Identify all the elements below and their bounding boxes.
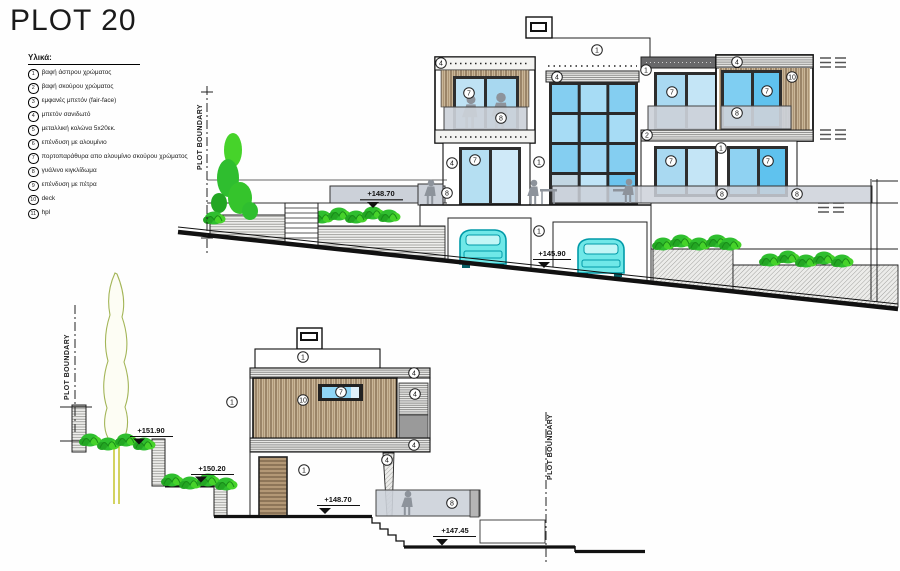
plot-boundary-right-bottom: PLOT BOUNDARY bbox=[546, 412, 554, 563]
svg-text:8: 8 bbox=[445, 190, 449, 197]
svg-text:8: 8 bbox=[499, 115, 503, 122]
svg-text:4: 4 bbox=[412, 370, 416, 377]
svg-text:+145.90: +145.90 bbox=[538, 249, 565, 258]
svg-text:7: 7 bbox=[766, 158, 770, 165]
svg-text:7: 7 bbox=[467, 90, 471, 97]
slab-band bbox=[641, 130, 813, 141]
svg-text:4: 4 bbox=[735, 59, 739, 66]
drawing-sheet: PLOT 20 Υλικά: 1βαφή άσπρου χρώματος 2βα… bbox=[0, 0, 900, 571]
svg-text:8: 8 bbox=[720, 191, 724, 198]
svg-text:1: 1 bbox=[644, 67, 648, 74]
car bbox=[578, 239, 624, 277]
bottom-elevation: PLOT BOUNDARY PLOT BOUNDARY +151.90 +150… bbox=[60, 273, 645, 563]
svg-text:+147.45: +147.45 bbox=[441, 526, 468, 535]
callout-4: 4 bbox=[409, 368, 420, 379]
balcony-railing bbox=[721, 106, 791, 129]
svg-text:7: 7 bbox=[473, 157, 477, 164]
svg-text:4: 4 bbox=[555, 74, 559, 81]
callout-8: 8 bbox=[732, 108, 743, 119]
svg-text:4: 4 bbox=[413, 391, 417, 398]
svg-text:4: 4 bbox=[450, 160, 454, 167]
glass-railing bbox=[376, 490, 480, 516]
callout-4: 4 bbox=[409, 440, 420, 451]
svg-text:+151.90: +151.90 bbox=[137, 426, 164, 435]
grey-panel bbox=[399, 415, 428, 438]
chimney-vent bbox=[301, 333, 317, 340]
svg-text:+148.70: +148.70 bbox=[367, 189, 394, 198]
svg-text:4: 4 bbox=[385, 457, 389, 464]
callout-4: 4 bbox=[436, 58, 447, 69]
svg-text:2: 2 bbox=[645, 132, 649, 139]
parapet-wall bbox=[526, 17, 650, 57]
callout-2: 2 bbox=[642, 130, 653, 141]
callout-1: 1 bbox=[641, 65, 652, 76]
slab-band bbox=[250, 438, 430, 452]
level-marker-entrance: +148.70 bbox=[317, 495, 360, 514]
svg-text:1: 1 bbox=[537, 228, 541, 235]
boundary-tree bbox=[203, 133, 258, 225]
callout-10: 10 bbox=[298, 395, 309, 406]
callout-7: 7 bbox=[666, 156, 677, 167]
ground-lines bbox=[214, 517, 645, 553]
callout-8: 8 bbox=[442, 188, 453, 199]
svg-text:7: 7 bbox=[670, 89, 674, 96]
callout-7: 7 bbox=[464, 88, 475, 99]
callout-7: 7 bbox=[763, 156, 774, 167]
wood-door bbox=[259, 457, 287, 516]
callout-7: 7 bbox=[667, 87, 678, 98]
callout-4: 4 bbox=[552, 72, 563, 83]
parapet bbox=[255, 349, 380, 368]
svg-text:8: 8 bbox=[735, 110, 739, 117]
elevation-drawing: PLOT BOUNDARY +148.70 +145.90 4 7 8 4 7 … bbox=[0, 0, 900, 571]
balcony-railing bbox=[444, 107, 527, 131]
callout-1: 1 bbox=[716, 143, 727, 154]
callout-7: 7 bbox=[470, 155, 481, 166]
callout-4: 4 bbox=[447, 158, 458, 169]
callout-8: 8 bbox=[496, 113, 507, 124]
steps bbox=[372, 517, 404, 547]
boundary-label: PLOT BOUNDARY bbox=[64, 334, 71, 400]
cypress-tree bbox=[104, 273, 129, 504]
svg-text:+150.20: +150.20 bbox=[198, 464, 225, 473]
callout-8: 8 bbox=[792, 189, 803, 200]
svg-text:10: 10 bbox=[788, 74, 796, 81]
callout-4: 4 bbox=[732, 57, 743, 68]
garden-terraces bbox=[60, 405, 238, 516]
callout-1: 1 bbox=[227, 397, 238, 408]
lower-building bbox=[250, 328, 480, 517]
chimney-vent bbox=[531, 23, 546, 31]
callout-1: 1 bbox=[298, 352, 309, 363]
garden-wall bbox=[214, 486, 227, 516]
svg-text:8: 8 bbox=[450, 500, 454, 507]
callout-1: 1 bbox=[534, 157, 545, 168]
window-pane bbox=[492, 150, 518, 203]
callout-1: 1 bbox=[534, 226, 545, 237]
callout-4: 4 bbox=[410, 389, 421, 400]
svg-text:1: 1 bbox=[537, 159, 541, 166]
svg-text:1: 1 bbox=[719, 145, 723, 152]
svg-text:1: 1 bbox=[302, 467, 306, 474]
svg-text:1: 1 bbox=[301, 354, 305, 361]
grey-post bbox=[470, 490, 479, 517]
left-building bbox=[435, 57, 535, 205]
glass-tower bbox=[546, 71, 639, 205]
svg-text:10: 10 bbox=[299, 397, 307, 404]
level-marker-path: +147.45 bbox=[433, 526, 476, 546]
terrace-railing-long bbox=[552, 186, 872, 203]
boundary-label: PLOT BOUNDARY bbox=[197, 104, 204, 170]
top-elevation: PLOT BOUNDARY +148.70 +145.90 4 7 8 4 7 … bbox=[178, 17, 898, 309]
svg-text:+148.70: +148.70 bbox=[324, 495, 351, 504]
callout-8: 8 bbox=[717, 189, 728, 200]
window-pane bbox=[351, 387, 359, 398]
svg-text:7: 7 bbox=[765, 88, 769, 95]
svg-text:4: 4 bbox=[412, 442, 416, 449]
callout-4: 4 bbox=[382, 455, 393, 466]
boundary-label: PLOT BOUNDARY bbox=[547, 414, 554, 480]
svg-text:7: 7 bbox=[669, 158, 673, 165]
svg-text:1: 1 bbox=[595, 47, 599, 54]
svg-text:8: 8 bbox=[795, 191, 799, 198]
roof-band bbox=[250, 368, 430, 378]
callout-10: 10 bbox=[787, 72, 798, 83]
boundary-step bbox=[480, 520, 545, 543]
callout-7: 7 bbox=[336, 387, 347, 398]
callout-1: 1 bbox=[299, 465, 310, 476]
callout-7: 7 bbox=[762, 86, 773, 97]
svg-text:7: 7 bbox=[339, 389, 343, 396]
svg-text:1: 1 bbox=[230, 399, 234, 406]
balcony-railing bbox=[648, 106, 718, 131]
callout-1: 1 bbox=[592, 45, 603, 56]
callout-8: 8 bbox=[447, 498, 458, 509]
stairs bbox=[285, 203, 318, 246]
svg-text:4: 4 bbox=[439, 60, 443, 67]
